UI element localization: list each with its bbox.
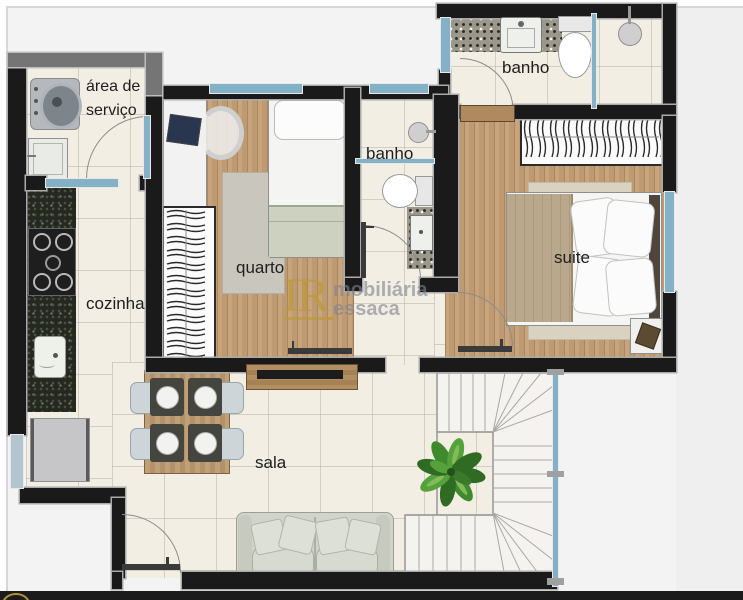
service-door-leaf	[144, 116, 150, 178]
placemat-3	[150, 424, 184, 462]
window-hallbath-top	[370, 84, 428, 93]
washing-machine	[30, 78, 80, 130]
wall-service-right	[146, 53, 162, 95]
hallbath-toilet-bowl	[382, 174, 418, 208]
suitebath-sink	[500, 17, 542, 53]
single-bed	[268, 94, 352, 258]
plate-2	[194, 386, 217, 409]
suitebath-glass-divider	[592, 14, 596, 108]
suitebath-sink-faucet	[518, 21, 524, 27]
desk-chair	[198, 106, 244, 160]
burner-4	[55, 273, 73, 291]
wall-bottom-a	[112, 572, 122, 589]
suitebath-toilet-tank	[558, 16, 592, 32]
stove	[28, 228, 76, 296]
bottom-bar-logo-arc	[2, 593, 30, 600]
wall-hallbath-suite-divider	[434, 95, 458, 292]
wall-suite-right-a	[663, 116, 676, 192]
wall-left	[8, 58, 26, 435]
sofa-armrest-left	[238, 515, 252, 577]
placemat-2	[188, 378, 222, 416]
right-margin	[676, 8, 743, 591]
suite-pillow-4	[605, 257, 658, 317]
bottom-bar	[0, 591, 743, 600]
single-bed-fold	[269, 221, 349, 222]
suitebath-door-leaf	[460, 105, 515, 122]
plate-4	[194, 432, 217, 455]
bedroom-door-leaf	[288, 348, 352, 354]
wall-service-top	[8, 53, 162, 67]
burner-2	[55, 233, 73, 251]
wall-suitebath-right	[663, 4, 676, 116]
label-living-room: sala	[255, 453, 286, 473]
wall-hallbath-bottom-a	[345, 278, 362, 291]
hallbath-shower-stem	[426, 130, 436, 133]
wall-hallbath-bottom-b	[420, 278, 458, 292]
suite-door-leaf	[458, 346, 512, 352]
placemat-1	[150, 378, 184, 416]
laptop	[166, 114, 202, 146]
nightstand-item	[635, 322, 661, 350]
bedroom-door-handle	[292, 341, 294, 349]
window-service-bottom	[46, 179, 118, 187]
hallbath-sink	[410, 215, 433, 251]
wall-kitchen-bottom	[20, 488, 125, 503]
plate-1	[156, 386, 179, 409]
suitebath-shower-head	[618, 22, 642, 46]
label-service-area-line1: área de	[86, 78, 140, 96]
kitchen-sink	[34, 336, 66, 378]
suite-door-handle	[500, 339, 503, 346]
suite-wardrobe	[520, 114, 668, 166]
burner-center	[45, 255, 61, 271]
label-hall-bathroom: banho	[366, 144, 413, 164]
laundry-sink-basin	[33, 143, 63, 175]
label-kitchen: cozinha	[86, 294, 145, 314]
washer-knob-2	[34, 99, 38, 103]
washer-knob-3	[34, 111, 38, 115]
bedroom-wardrobe	[162, 206, 216, 366]
nightstand	[630, 318, 664, 354]
label-suite-bathroom: banho	[502, 58, 549, 78]
suite-pillow-2	[602, 199, 655, 259]
laundry-sink	[28, 138, 68, 180]
wall-bedroom-hallbath-divider	[345, 88, 360, 291]
suite-wardrobe-hangers	[522, 116, 661, 159]
tv-rack	[246, 364, 358, 390]
hallbath-door-leaf	[361, 222, 366, 278]
wardrobe-hangers-pattern	[164, 208, 209, 359]
plant	[408, 430, 494, 514]
suitebath-shower-stem	[628, 6, 631, 24]
hallbath-sink-drain	[419, 230, 423, 234]
entrance-door-handle	[166, 557, 169, 565]
railing-post-bottom	[547, 578, 564, 585]
burner-1	[33, 233, 51, 251]
single-bed-blanket	[269, 205, 349, 257]
window-bedroom-top	[210, 84, 302, 93]
window-suite-right	[665, 192, 674, 292]
plate-3	[156, 432, 179, 455]
railing-post-top	[547, 369, 564, 375]
label-service-area-line2: serviço	[86, 102, 137, 120]
placemat-4	[188, 424, 222, 462]
kitchen-sink-line	[39, 361, 55, 368]
entrance-door-leaf	[122, 564, 180, 570]
washer-drum	[40, 83, 82, 129]
floor-plan-image: área de serviço cozinha	[0, 0, 743, 600]
burner-3	[33, 273, 51, 291]
washer-knob-1	[34, 87, 38, 91]
hallbath-door-handle	[366, 226, 374, 228]
refrigerator	[30, 418, 90, 482]
sofa-pillow-4	[344, 518, 382, 556]
single-bed-pillow	[274, 100, 346, 140]
kitchen-sink-drain	[53, 353, 58, 358]
wall-bottom-b	[182, 572, 557, 589]
wall-suitebath-top	[437, 4, 676, 18]
window-kitchen-left	[11, 435, 23, 488]
window-suitebath-left	[441, 18, 450, 72]
railing-post-mid	[547, 471, 564, 477]
suitebath-sink-basin	[507, 28, 535, 48]
washer-drum-center	[52, 97, 62, 107]
wall-service-bottom-a	[26, 176, 46, 190]
kitchen-counter	[26, 188, 76, 412]
label-suite: suite	[554, 248, 590, 268]
stairs-glass-railing	[553, 372, 558, 586]
label-bedroom: quarto	[236, 258, 284, 278]
tv	[257, 370, 343, 379]
